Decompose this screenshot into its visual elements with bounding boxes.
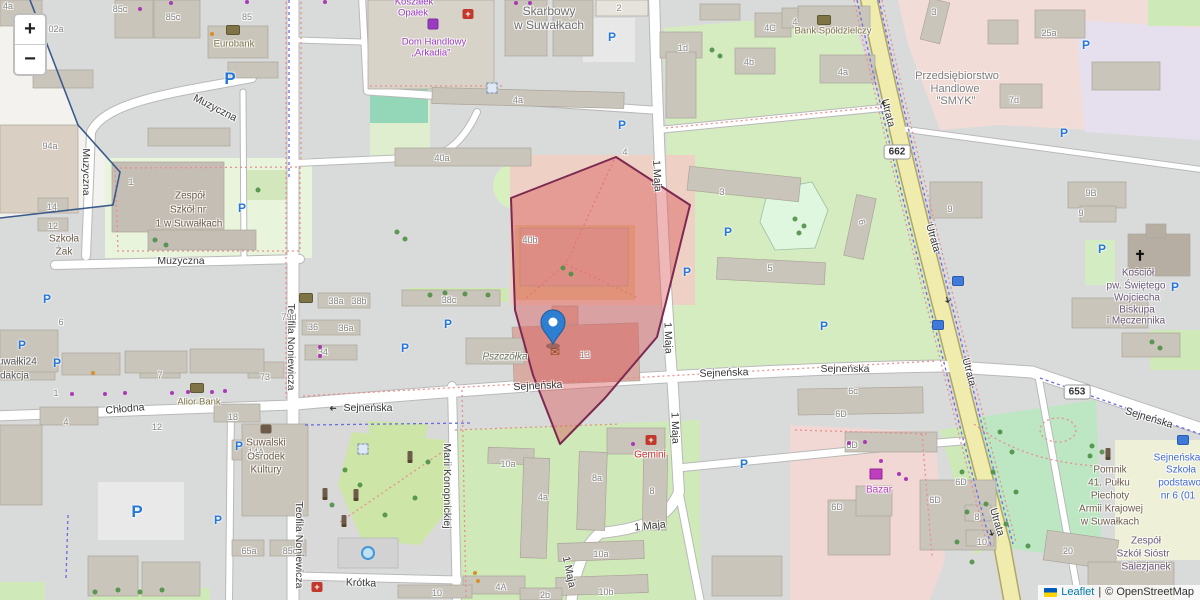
church-building — [1128, 234, 1190, 276]
attribution-bar: Leaflet | © OpenStreetMap — [1038, 585, 1200, 600]
leaflet-link[interactable]: Leaflet — [1061, 586, 1094, 598]
zoom-out-button[interactable]: − — [15, 45, 45, 74]
map-viewport[interactable]: MuzycznaMuzycznaMuzycznaTeofila Noniewic… — [0, 0, 1200, 600]
road-marii-konopnickiej — [452, 386, 457, 600]
zoom-control: + − — [13, 13, 47, 76]
ukraine-flag-icon — [1044, 588, 1057, 597]
attribution-separator: | — [1098, 586, 1101, 598]
zoom-in-button[interactable]: + — [15, 15, 45, 44]
map-canvas — [0, 0, 1200, 600]
osm-attribution[interactable]: © OpenStreetMap — [1105, 586, 1194, 598]
sok-building — [242, 424, 308, 516]
road-krotka — [298, 576, 458, 580]
